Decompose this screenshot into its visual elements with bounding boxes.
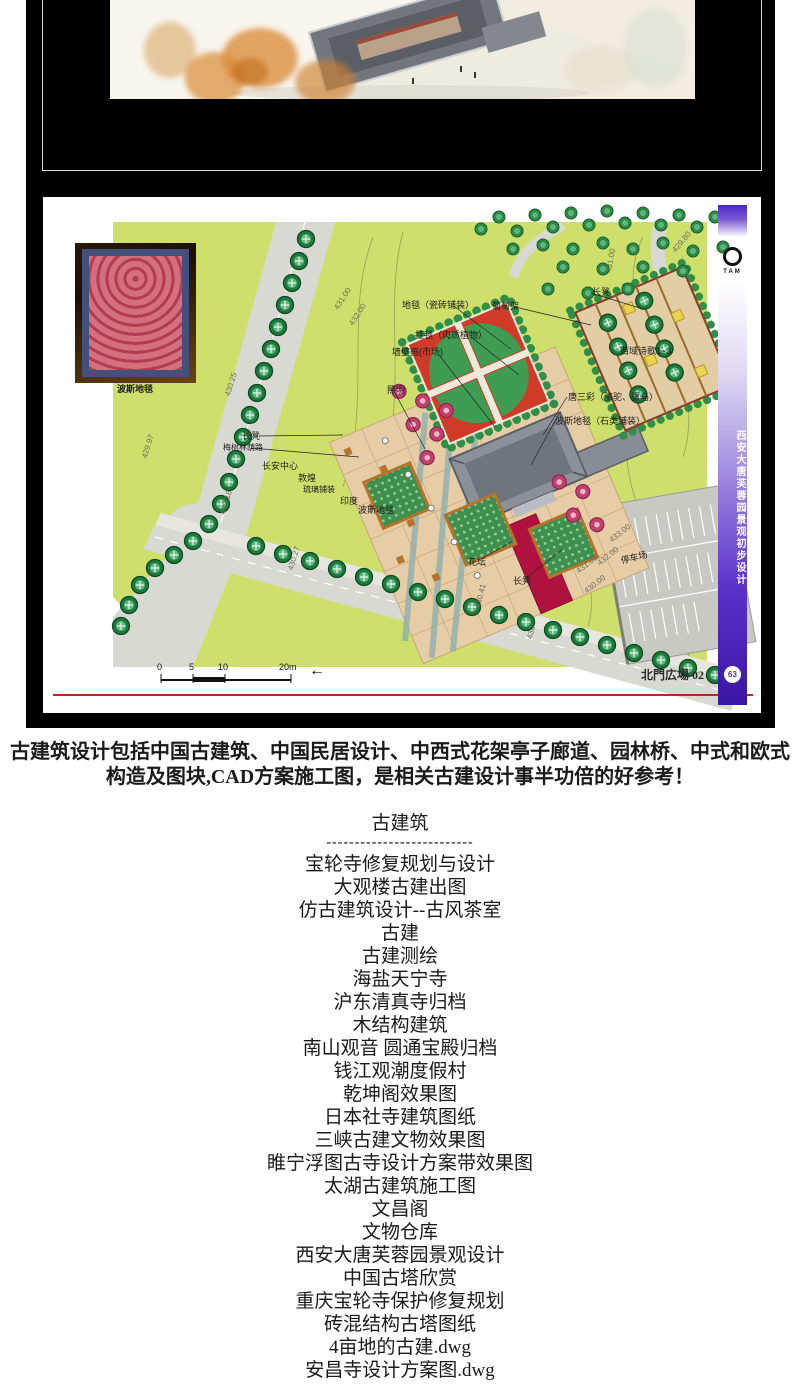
catalog-item: 仿古建筑设计--古风茶室 xyxy=(70,899,730,922)
product-description-page: { "plan": { "carpet_caption": "波斯地毯", "l… xyxy=(0,0,800,1385)
catalog-item: 木结构建筑 xyxy=(70,1014,730,1037)
plan-label: 葡萄架 xyxy=(492,302,519,311)
plan-label: 琉璃铺装 xyxy=(303,486,335,494)
hero-illustration xyxy=(110,0,695,99)
north-arrow-icon: ← xyxy=(309,663,325,679)
catalog-item: 南山观音 圆通宝殿归档 xyxy=(70,1037,730,1060)
intro-line-2: 构造及图块,CAD方案施工图，是相关古建设计事半功倍的好参考！ xyxy=(106,766,694,788)
catalog-item: 沪东清真寺归档 xyxy=(70,991,730,1014)
scalebar-tick: 5 xyxy=(189,663,194,672)
catalog-item: 太湖古建筑施工图 xyxy=(70,1175,730,1198)
plan-label: 印度 xyxy=(340,497,358,506)
plan-label: 长安中心 xyxy=(262,462,298,471)
sidebar-vertical-title: 西安大唐芙蓉园景观初步设计 xyxy=(718,393,747,623)
catalog-item: 宝轮寺修复规划与设计 xyxy=(70,853,730,876)
plan-label: 地毯（瓷砖铺装） xyxy=(402,301,474,310)
sheet-sidebar: TAM 西安大唐芙蓉园景观初步设计 63 xyxy=(718,205,747,705)
catalog-item: 砖混结构古塔图纸 xyxy=(70,1313,730,1336)
catalog-item: 西安大唐芙蓉园景观设计 xyxy=(70,1244,730,1267)
catalog-item: 文昌阁 xyxy=(70,1198,730,1221)
description-section: 古建筑设计包括中国古建筑、中国民居设计、中西式花架亭子廊道、园林桥、中式和欧式 … xyxy=(0,728,800,1382)
catalog-file-list: 宝轮寺修复规划与设计 大观楼古建出图 仿古建筑设计--古风茶室 古建 古建测绘 … xyxy=(70,853,730,1382)
catalog-item: 乾坤阁效果图 xyxy=(70,1083,730,1106)
catalog-item: 古建 xyxy=(70,922,730,945)
plan-label: 梅树林荫路 xyxy=(223,444,263,452)
catalog-item: 中国古塔欣赏 xyxy=(70,1267,730,1290)
site-plan-sheet: 波斯地毯 地毯（瓷砖铺装） 挂毯（肉质植物） 墙壁画(市场) 照明 葡萄架 长凳… xyxy=(43,197,761,713)
sheet-title: 北門広場 02 xyxy=(641,666,704,683)
sidebar-top-gradient xyxy=(718,205,747,237)
catalog-item: 大观楼古建出图 xyxy=(70,876,730,899)
catalog-item: 重庆宝轮寺保护修复规划 xyxy=(70,1290,730,1313)
plan-label: 西域诗歌1~3 xyxy=(620,347,671,356)
hero-rendering-image xyxy=(110,0,695,99)
plan-label: 墙壁画(市场) xyxy=(392,348,443,357)
plan-label: 长凳 xyxy=(592,288,610,297)
plan-label: 波斯地毯（石类铺装） xyxy=(555,417,645,426)
intro-line-1: 古建筑设计包括中国古建筑、中国民居设计、中西式花架亭子廊道、园林桥、中式和欧式 xyxy=(10,741,790,763)
sheet-rule-line xyxy=(53,694,753,696)
catalog-item: 钱江观潮度假村 xyxy=(70,1060,730,1083)
catalog-item: 古建测绘 xyxy=(70,945,730,968)
catalog-item: 睢宁浮图古寺设计方案带效果图 xyxy=(70,1152,730,1175)
tam-logo-text: TAM xyxy=(718,269,747,275)
catalog-item: 日本社寺建筑图纸 xyxy=(70,1106,730,1129)
plan-label: 长凳 xyxy=(513,577,531,586)
carpet-caption: 波斯地毯 xyxy=(117,385,153,394)
catalog-heading: 古建筑 xyxy=(70,812,730,836)
catalog-divider: -------------------------- xyxy=(0,836,800,850)
scalebar-tick: 10 xyxy=(218,663,228,672)
catalog-item: 文物仓库 xyxy=(70,1221,730,1244)
plan-label: 长凳 xyxy=(242,432,260,441)
plan-label: 花坛 xyxy=(468,558,486,567)
catalog-item: 海盐天宁寺 xyxy=(70,968,730,991)
catalog-item: 三峡古建文物效果图 xyxy=(70,1129,730,1152)
plan-label: 波斯地毯 xyxy=(358,506,394,515)
catalog-item: 安昌寺设计方案图.dwg xyxy=(70,1359,730,1382)
intro-paragraph: 古建筑设计包括中国古建筑、中国民居设计、中西式花架亭子廊道、园林桥、中式和欧式 … xyxy=(4,740,796,790)
plan-label: 照明 xyxy=(387,386,405,395)
scalebar-tick: 20m xyxy=(279,663,297,672)
carpet-rug-image xyxy=(82,249,189,377)
persian-carpet-photo xyxy=(75,243,196,383)
plan-label: 唐三彩（骆驼、骡马） xyxy=(568,393,658,402)
sheet-number-badge: 63 xyxy=(724,666,741,683)
plan-label: 挂毯（肉质植物） xyxy=(415,331,487,340)
catalog-item: 4亩地的古建.dwg xyxy=(70,1336,730,1359)
plan-label: 敦煌 xyxy=(298,474,316,483)
tam-logo-icon xyxy=(723,247,742,266)
black-page-frame: 波斯地毯 地毯（瓷砖铺装） 挂毯（肉质植物） 墙壁画(市场) 照明 葡萄架 长凳… xyxy=(26,0,775,728)
scalebar-tick: 0 xyxy=(157,663,162,672)
